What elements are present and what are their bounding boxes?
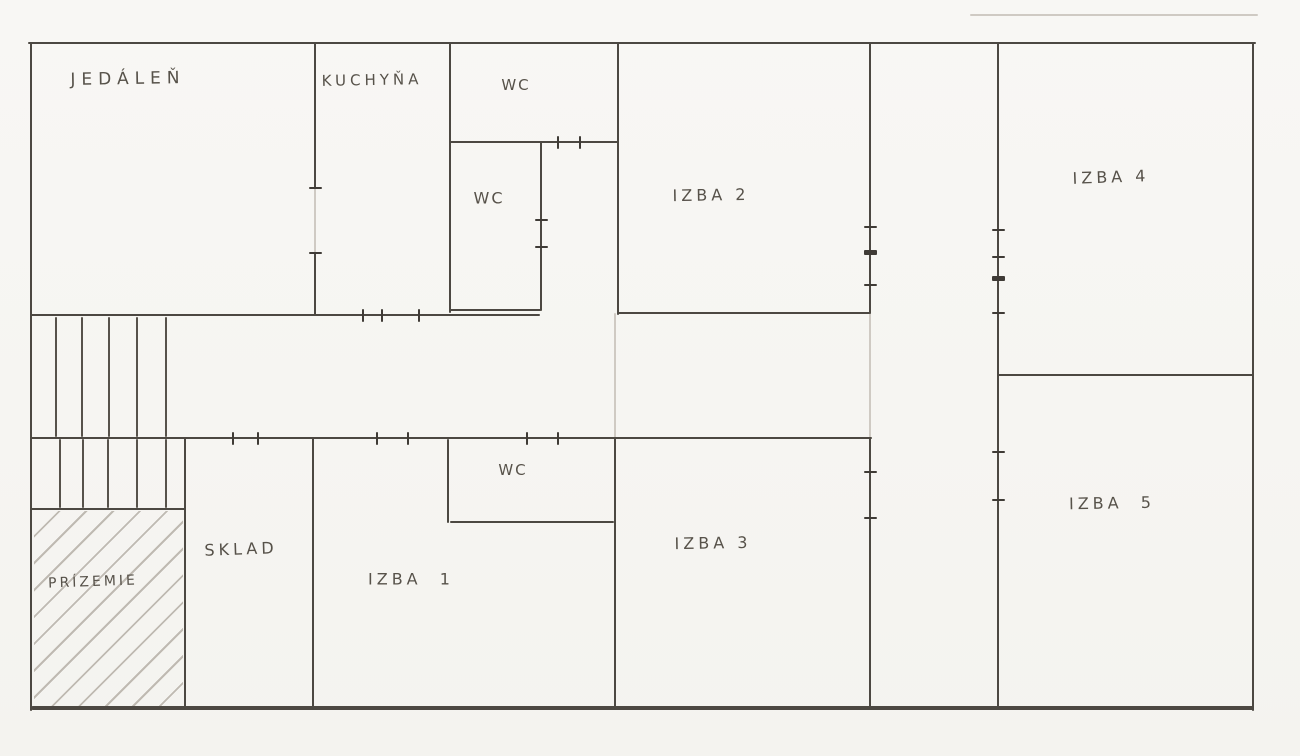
stair-tread <box>59 439 61 508</box>
door-tick <box>992 276 1005 281</box>
wall <box>184 437 187 709</box>
door-tick <box>535 219 548 222</box>
door-tick <box>864 226 877 229</box>
wall <box>540 142 543 311</box>
door-tick <box>257 432 260 445</box>
wall <box>618 312 870 315</box>
door-tick <box>864 284 877 287</box>
door-tick <box>864 471 877 474</box>
faint-pencil-line <box>614 313 616 438</box>
wall <box>30 43 33 711</box>
room-label-wc-bottom: WC <box>498 461 527 479</box>
door-tick <box>407 432 410 445</box>
floorplan-scan: JEDÁLEŇKUCHYŇAWCWCIZBA 2IZBA 4WCSKLADIZB… <box>0 0 1300 756</box>
room-label-izba-5: IZBA 5 <box>1069 493 1155 513</box>
stair-tread <box>81 317 83 437</box>
wall <box>31 314 540 317</box>
door-tick <box>309 187 322 190</box>
door-tick <box>381 309 384 322</box>
wall <box>31 706 1254 710</box>
stair-tread <box>107 439 109 508</box>
stair-tread <box>165 317 167 437</box>
door-tick <box>362 309 365 322</box>
room-label-wc-top: WC <box>501 76 530 94</box>
door-tick <box>526 432 529 445</box>
faint-pencil-line <box>314 187 316 254</box>
stair-tread <box>165 439 167 508</box>
wall <box>314 252 317 316</box>
door-tick <box>992 229 1005 232</box>
stair-tread <box>55 317 57 437</box>
stair-tread <box>108 317 110 437</box>
wall <box>617 43 620 315</box>
wall <box>31 508 185 511</box>
wall <box>869 437 872 709</box>
door-tick <box>864 517 877 520</box>
wall <box>450 521 614 524</box>
door-tick <box>992 312 1005 315</box>
stair-tread <box>82 439 84 508</box>
wall <box>614 437 617 709</box>
door-tick <box>579 136 582 149</box>
wall <box>312 437 315 709</box>
room-label-sklad: SKLAD <box>204 538 278 560</box>
door-tick <box>557 432 560 445</box>
wall <box>447 439 450 523</box>
room-label-izba-3: IZBA 3 <box>674 533 751 553</box>
faint-pencil-line <box>970 14 1258 16</box>
stair-tread <box>136 439 138 508</box>
door-tick <box>309 252 322 255</box>
door-tick <box>992 256 1005 259</box>
door-tick <box>418 309 421 322</box>
door-tick <box>557 136 560 149</box>
door-tick <box>535 246 548 249</box>
wall <box>28 42 1256 45</box>
wall <box>869 43 872 314</box>
room-label-prizemie: PRÍZEMIE <box>48 572 138 591</box>
wall <box>450 141 618 144</box>
wall <box>31 437 872 440</box>
door-tick <box>992 451 1005 454</box>
stair-tread <box>136 317 138 437</box>
wall <box>449 43 452 313</box>
wall <box>1252 43 1255 711</box>
door-tick <box>232 432 235 445</box>
entrance-hatch <box>34 511 183 708</box>
door-tick <box>992 499 1005 502</box>
wall <box>998 374 1253 377</box>
room-label-jedalen: JEDÁLEŇ <box>70 68 185 90</box>
room-label-wc-mid: WC <box>474 189 505 208</box>
room-label-izba-1: IZBA 1 <box>368 570 454 589</box>
door-tick <box>376 432 379 445</box>
wall <box>450 309 541 312</box>
room-label-izba-2: IZBA 2 <box>672 185 749 205</box>
room-label-izba-4: IZBA 4 <box>1072 166 1149 188</box>
room-label-kuchyna: KUCHYŇA <box>321 70 422 90</box>
wall <box>314 43 317 189</box>
door-tick <box>864 250 877 255</box>
faint-pencil-line <box>869 312 871 438</box>
